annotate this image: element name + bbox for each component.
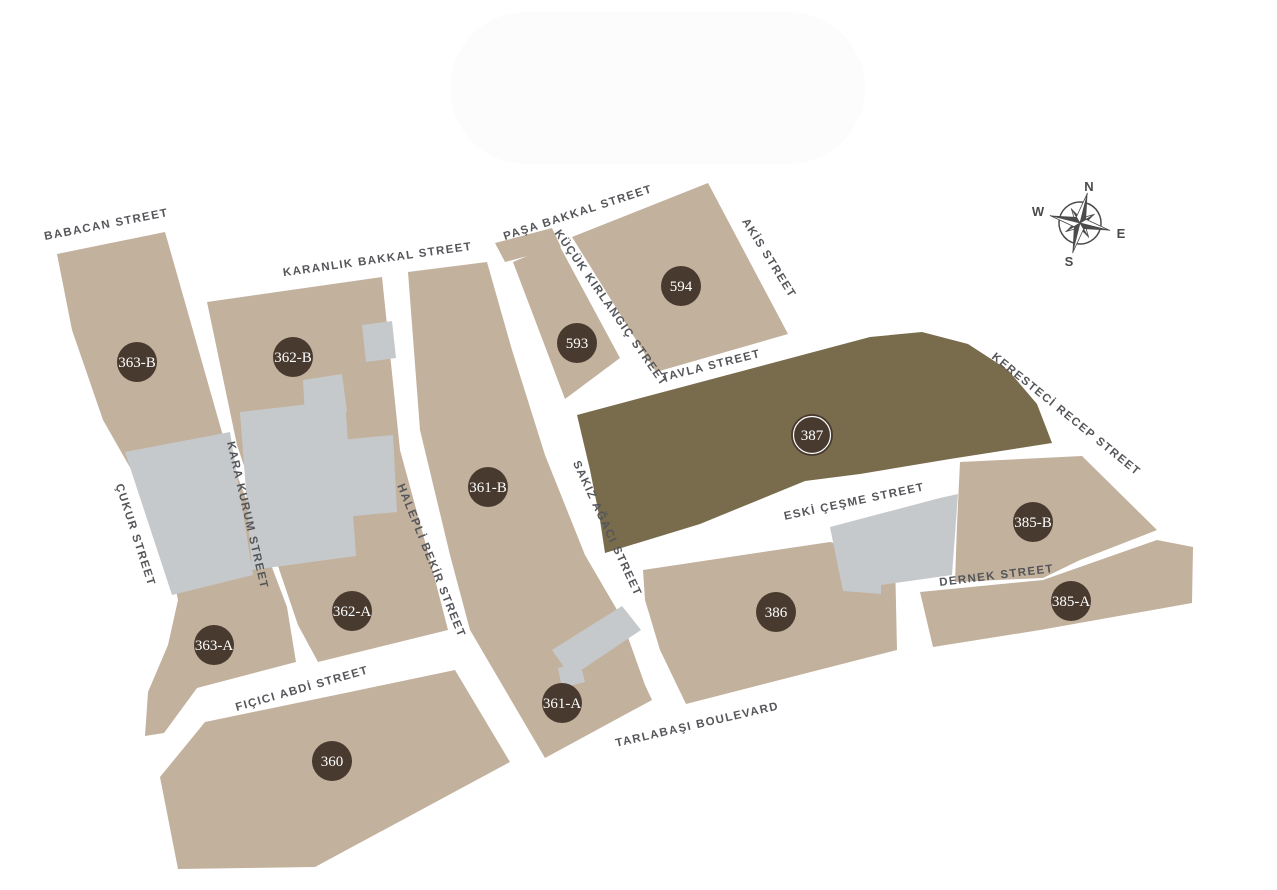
compass-east-label: E: [1117, 226, 1126, 241]
block-marker-594[interactable]: 594: [661, 266, 701, 306]
block-marker-593[interactable]: 593: [557, 323, 597, 363]
svg-text:593: 593: [566, 336, 589, 352]
masterplan-map: BABACAN STREETKARANLIK BAKKAL STREETPAŞA…: [0, 0, 1277, 890]
block-marker-386[interactable]: 386: [756, 592, 796, 632]
block-marker-361-b[interactable]: 361-B: [468, 467, 508, 507]
block-marker-385-b[interactable]: 385-B: [1013, 502, 1053, 542]
svg-text:594: 594: [670, 279, 693, 295]
block-marker-361-a[interactable]: 361-A: [542, 683, 582, 723]
block-marker-362-b[interactable]: 362-B: [273, 337, 313, 377]
building-footprint: [362, 321, 396, 362]
svg-text:385-B: 385-B: [1014, 515, 1052, 531]
svg-text:362-B: 362-B: [274, 350, 312, 366]
compass-rose-icon: N E S W: [1032, 179, 1126, 269]
street-label-tarlaba-i-boulevard: TARLABAŞI BOULEVARD: [614, 700, 780, 749]
compass-west-label: W: [1032, 204, 1045, 219]
compass-south-label: S: [1065, 254, 1074, 269]
block-marker-362-a[interactable]: 362-A: [332, 591, 372, 631]
svg-text:362-A: 362-A: [333, 604, 371, 620]
compass-north-label: N: [1084, 179, 1093, 194]
block-marker-387[interactable]: 387: [791, 414, 833, 456]
svg-text:360: 360: [321, 754, 344, 770]
map-canvas: BABACAN STREETKARANLIK BAKKAL STREETPAŞA…: [0, 0, 1277, 890]
block-marker-363-a[interactable]: 363-A: [194, 625, 234, 665]
logo-placeholder: [450, 12, 865, 164]
svg-text:385-A: 385-A: [1052, 594, 1090, 610]
svg-text:361-A: 361-A: [543, 696, 581, 712]
svg-text:387: 387: [801, 428, 824, 444]
block-marker-360[interactable]: 360: [312, 741, 352, 781]
svg-text:361-B: 361-B: [469, 480, 507, 496]
building-footprint: [340, 435, 397, 517]
svg-text:386: 386: [765, 605, 788, 621]
svg-text:363-B: 363-B: [118, 355, 156, 371]
block-marker-363-b[interactable]: 363-B: [117, 342, 157, 382]
block-marker-385-a[interactable]: 385-A: [1051, 581, 1091, 621]
svg-text:363-A: 363-A: [195, 638, 233, 654]
